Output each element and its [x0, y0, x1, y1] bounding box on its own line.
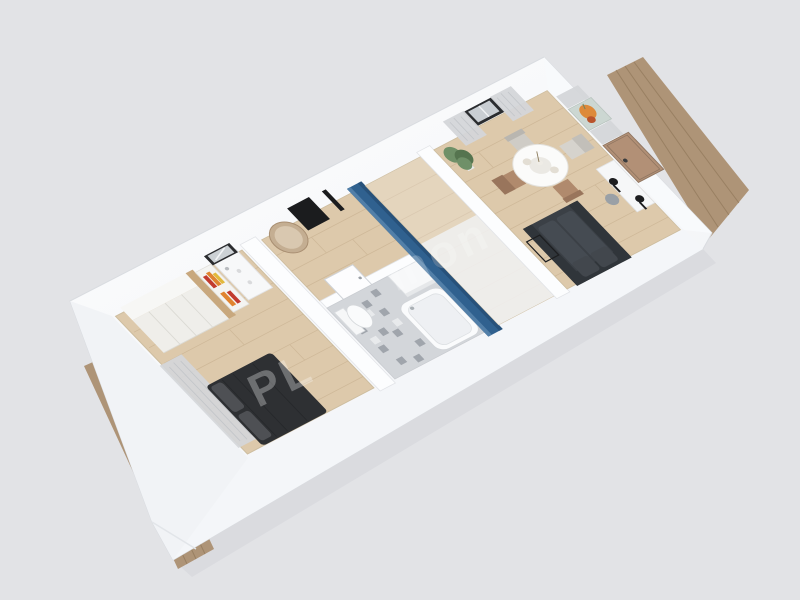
floor-plan-scene: PL mon: [0, 0, 800, 600]
floor-plan-svg: PL mon: [0, 0, 800, 600]
